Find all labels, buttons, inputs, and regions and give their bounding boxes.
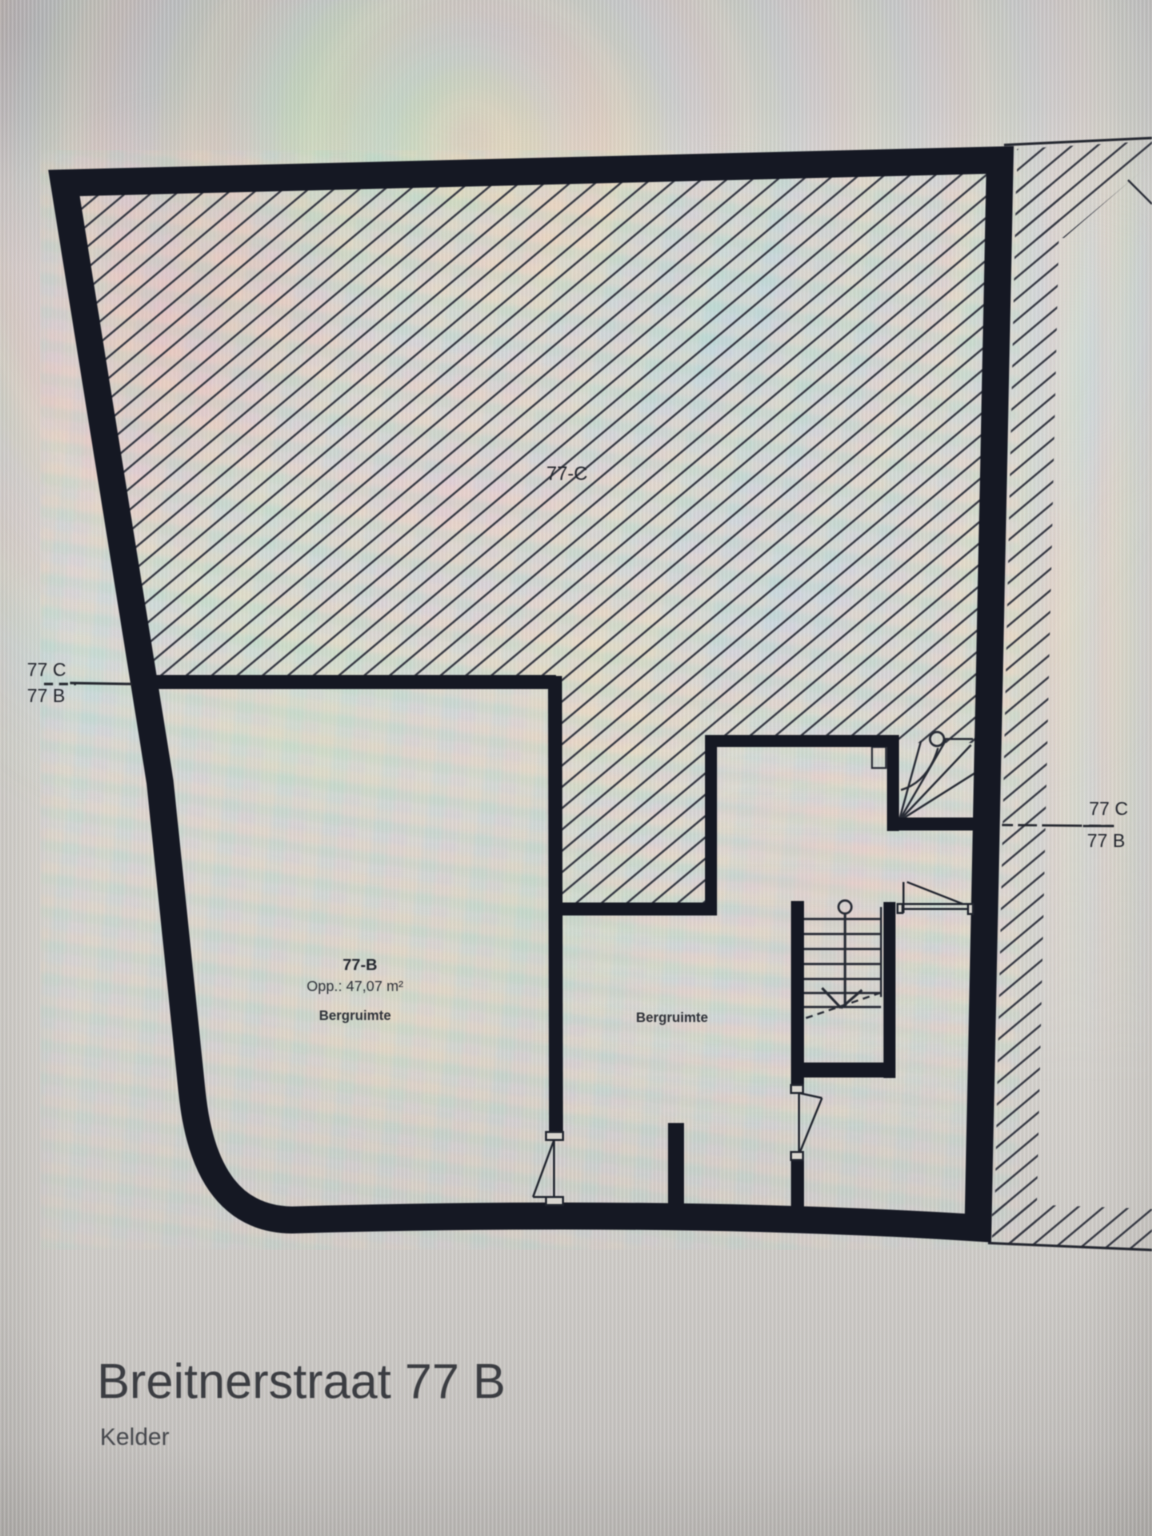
svg-text:77-B: 77-B (343, 957, 378, 974)
svg-text:Bergruimte: Bergruimte (319, 1008, 392, 1023)
svg-text:Bergruimte: Bergruimte (636, 1010, 709, 1025)
svg-text:Kelder: Kelder (100, 1424, 169, 1451)
svg-text:77 B: 77 B (1087, 830, 1125, 851)
svg-text:77 C: 77 C (1089, 798, 1128, 819)
svg-text:Breitnerstraat 77 B: Breitnerstraat 77 B (97, 1355, 506, 1409)
svg-text:Opp.: 47,07 m²: Opp.: 47,07 m² (307, 979, 404, 995)
svg-text:77 C: 77 C (27, 659, 66, 680)
svg-text:77 B: 77 B (27, 685, 65, 706)
svg-text:77-C: 77-C (546, 464, 587, 485)
